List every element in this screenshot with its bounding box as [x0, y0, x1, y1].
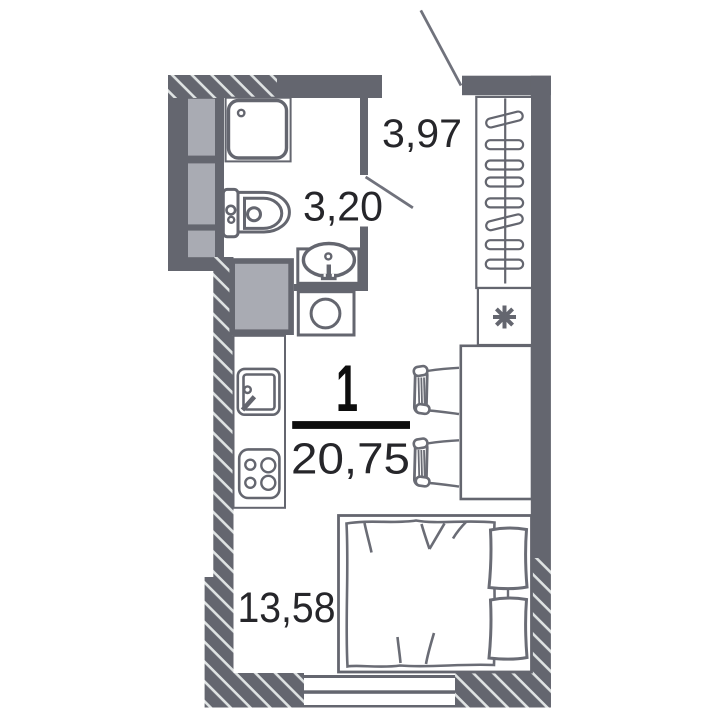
svg-text:13,58: 13,58 — [238, 585, 336, 632]
svg-text:20,75: 20,75 — [291, 434, 410, 483]
svg-text:3,97: 3,97 — [382, 112, 462, 156]
svg-text:1: 1 — [336, 351, 358, 425]
svg-text:3,20: 3,20 — [303, 183, 383, 230]
